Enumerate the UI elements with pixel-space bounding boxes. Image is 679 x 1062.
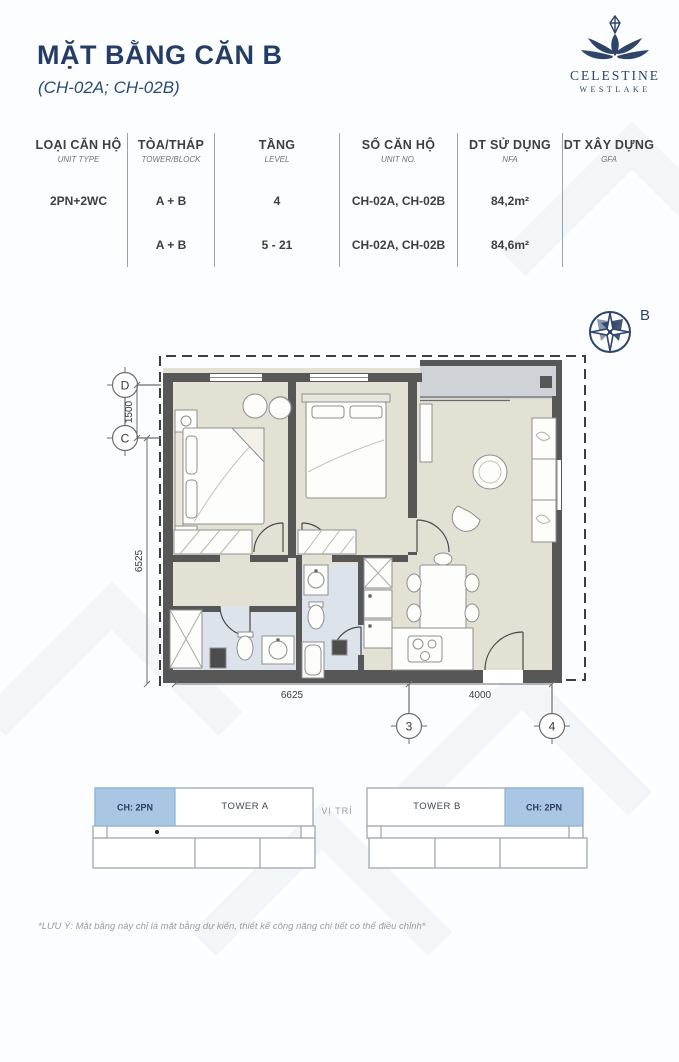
dim-6525: 6525 — [134, 549, 145, 572]
compass-north-label: B — [640, 307, 650, 324]
brand-logo: CELESTINE WESTLAKE — [560, 14, 670, 94]
grid-label-3: 3 — [406, 720, 413, 734]
col-header: LOẠI CĂN HỘ — [30, 138, 127, 152]
page-subtitle: (CH-02A; CH-02B) — [38, 78, 180, 98]
grid-label-4: 4 — [549, 720, 556, 734]
col-level: TẦNG LEVEL 4 5 - 21 — [215, 133, 340, 267]
col-unit-no: SỐ CĂN HỘ UNIT NO. CH-02A, CH-02B CH-02A… — [340, 133, 458, 267]
dim-6625: 6625 — [281, 690, 304, 701]
page-title: MẶT BẰNG CĂN B — [37, 40, 282, 71]
grid-label-d: D — [121, 379, 130, 393]
cell-unit-type: 2PN+2WC — [30, 178, 127, 222]
col-tower: TÒA/THÁP TOWER/BLOCK A + B A + B — [128, 133, 215, 267]
col-gfa: DT XÂY DỰNG GFA — [563, 133, 655, 267]
col-nfa: DT SỬ DỤNG NFA 84,2m² 84,6m² — [458, 133, 563, 267]
brand-location: WESTLAKE — [560, 85, 670, 94]
location-section-label: VỊ TRÍ — [313, 806, 361, 816]
col-unit-type: LOẠI CĂN HỘ UNIT TYPE 2PN+2WC — [30, 133, 128, 267]
dim-1500: 1500 — [124, 400, 135, 423]
tower-b-unit-label: CH: 2PN — [526, 803, 562, 813]
tower-b-label: TOWER B — [413, 801, 461, 812]
lotus-logo-icon — [580, 14, 650, 66]
tower-a-unit-label: CH: 2PN — [117, 803, 153, 813]
tower-a-label: TOWER A — [221, 801, 268, 812]
spec-table: LOẠI CĂN HỘ UNIT TYPE 2PN+2WC TÒA/THÁP T… — [30, 133, 655, 267]
floor-plan: D C 3 4 1500 6525 6625 4000 — [70, 340, 670, 775]
disclaimer-note: *LƯU Ý: Mặt bằng này chỉ là mặt bằng dự … — [38, 921, 425, 932]
dim-4000: 4000 — [469, 690, 492, 701]
grid-label-c: C — [121, 432, 130, 446]
brand-name: CELESTINE — [560, 68, 670, 84]
location-diagrams: CH: 2PN CH: 2PN TOWER A TOWER B — [85, 782, 597, 879]
